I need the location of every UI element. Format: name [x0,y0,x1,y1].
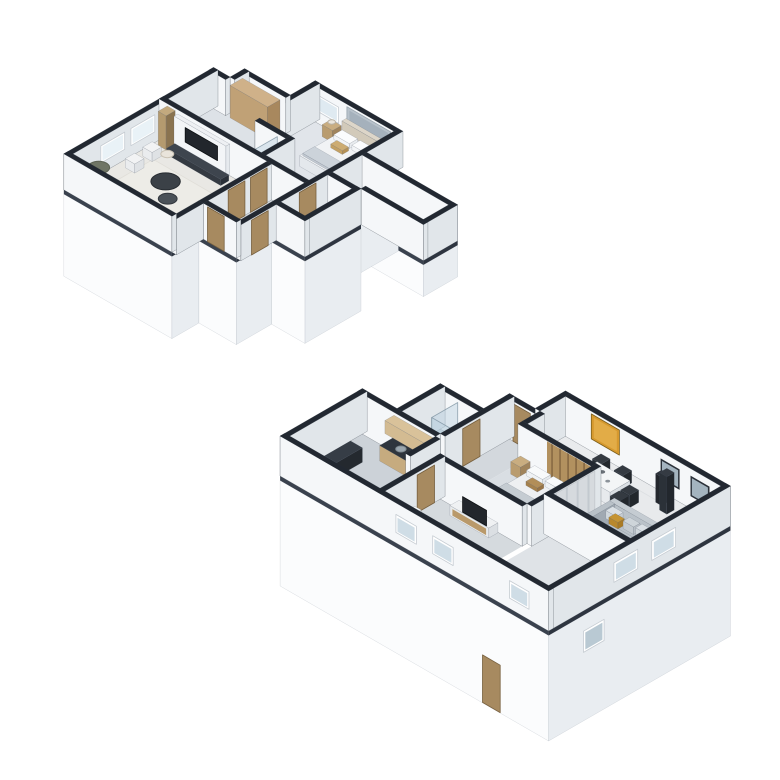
kitchen-sink [396,446,406,452]
curtain-fold [588,474,590,514]
coffee-table-small [158,193,177,204]
pedestal-door [483,655,501,713]
decor-vase [660,468,675,514]
shelf-column [158,106,175,150]
plan-upper-apartment [64,67,458,344]
floor-plan-render [0,0,780,780]
scene-svg [0,0,780,780]
plan-lower-apartment [280,384,730,742]
table-lamp [328,120,336,124]
coffee-table [151,173,180,190]
table-decor [605,480,610,483]
side-table [161,150,174,157]
